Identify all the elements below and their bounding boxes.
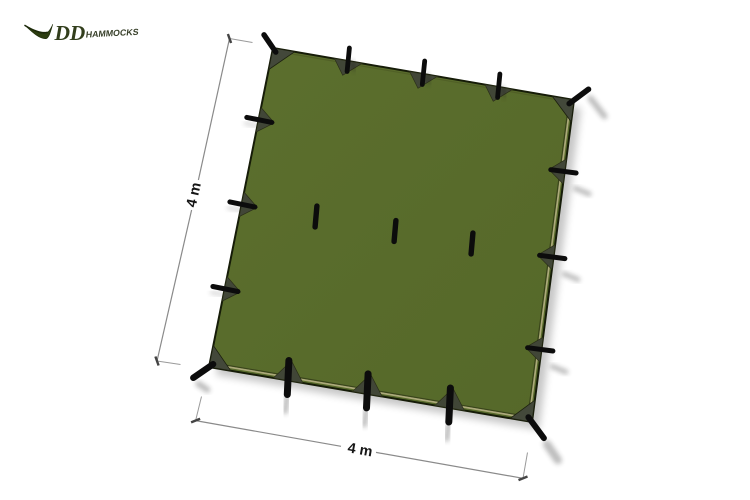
svg-text:DD: DD: [54, 21, 86, 45]
